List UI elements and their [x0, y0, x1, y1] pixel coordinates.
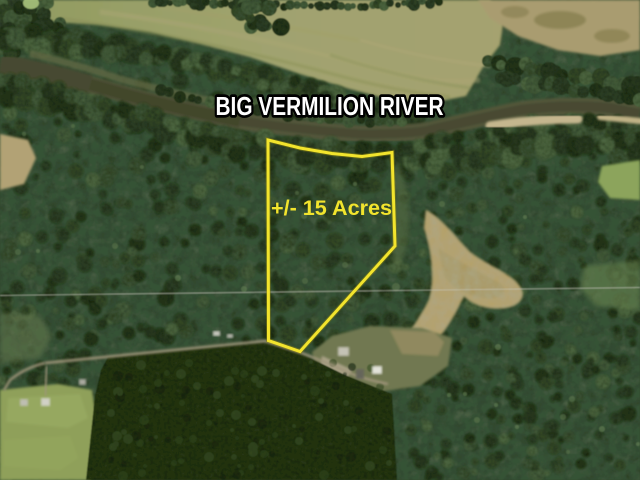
svg-text:+/- 15 Acres: +/- 15 Acres	[271, 196, 392, 220]
svg-text:BIG VERMILION RIVER: BIG VERMILION RIVER	[216, 91, 444, 121]
